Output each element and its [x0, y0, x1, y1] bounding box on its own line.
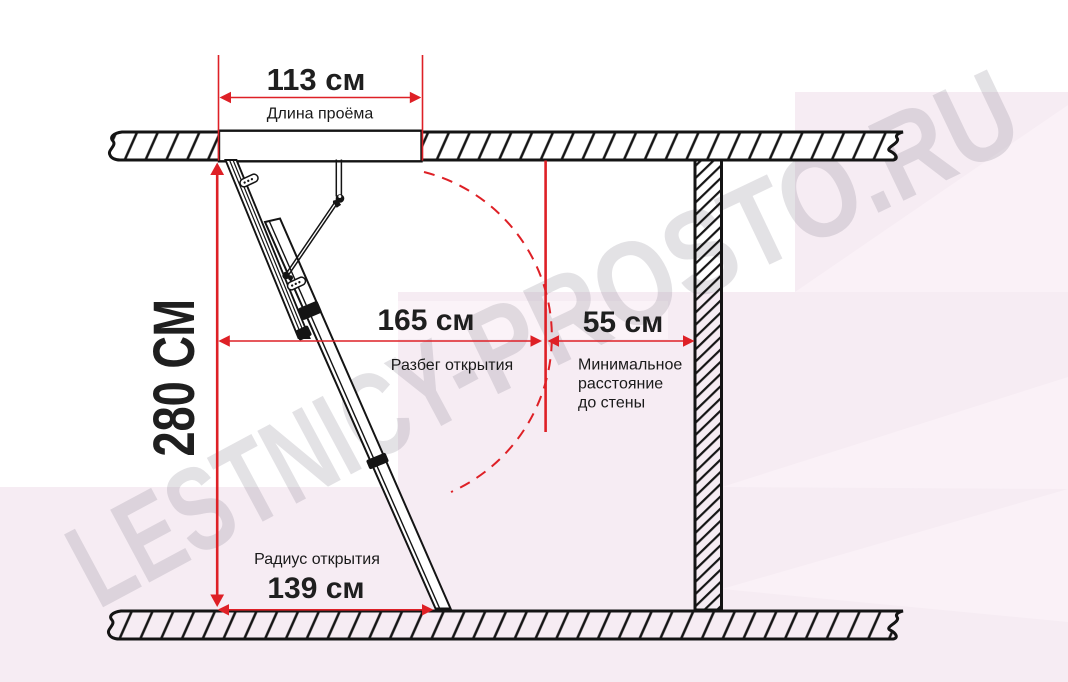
svg-text:139 см: 139 см	[267, 572, 364, 605]
svg-text:55 см: 55 см	[583, 306, 664, 339]
svg-text:до стены: до стены	[578, 395, 645, 412]
svg-text:расстояние: расстояние	[578, 376, 663, 393]
svg-text:Разбег открытия: Разбег открытия	[391, 357, 513, 374]
svg-text:Минимальное: Минимальное	[578, 357, 682, 374]
svg-text:Длина проёма: Длина проёма	[267, 106, 374, 123]
svg-text:165 см: 165 см	[377, 304, 474, 337]
svg-text:Радиус открытия: Радиус открытия	[254, 551, 380, 568]
svg-text:113 см: 113 см	[267, 62, 366, 97]
svg-text:280 СМ: 280 СМ	[143, 299, 208, 457]
